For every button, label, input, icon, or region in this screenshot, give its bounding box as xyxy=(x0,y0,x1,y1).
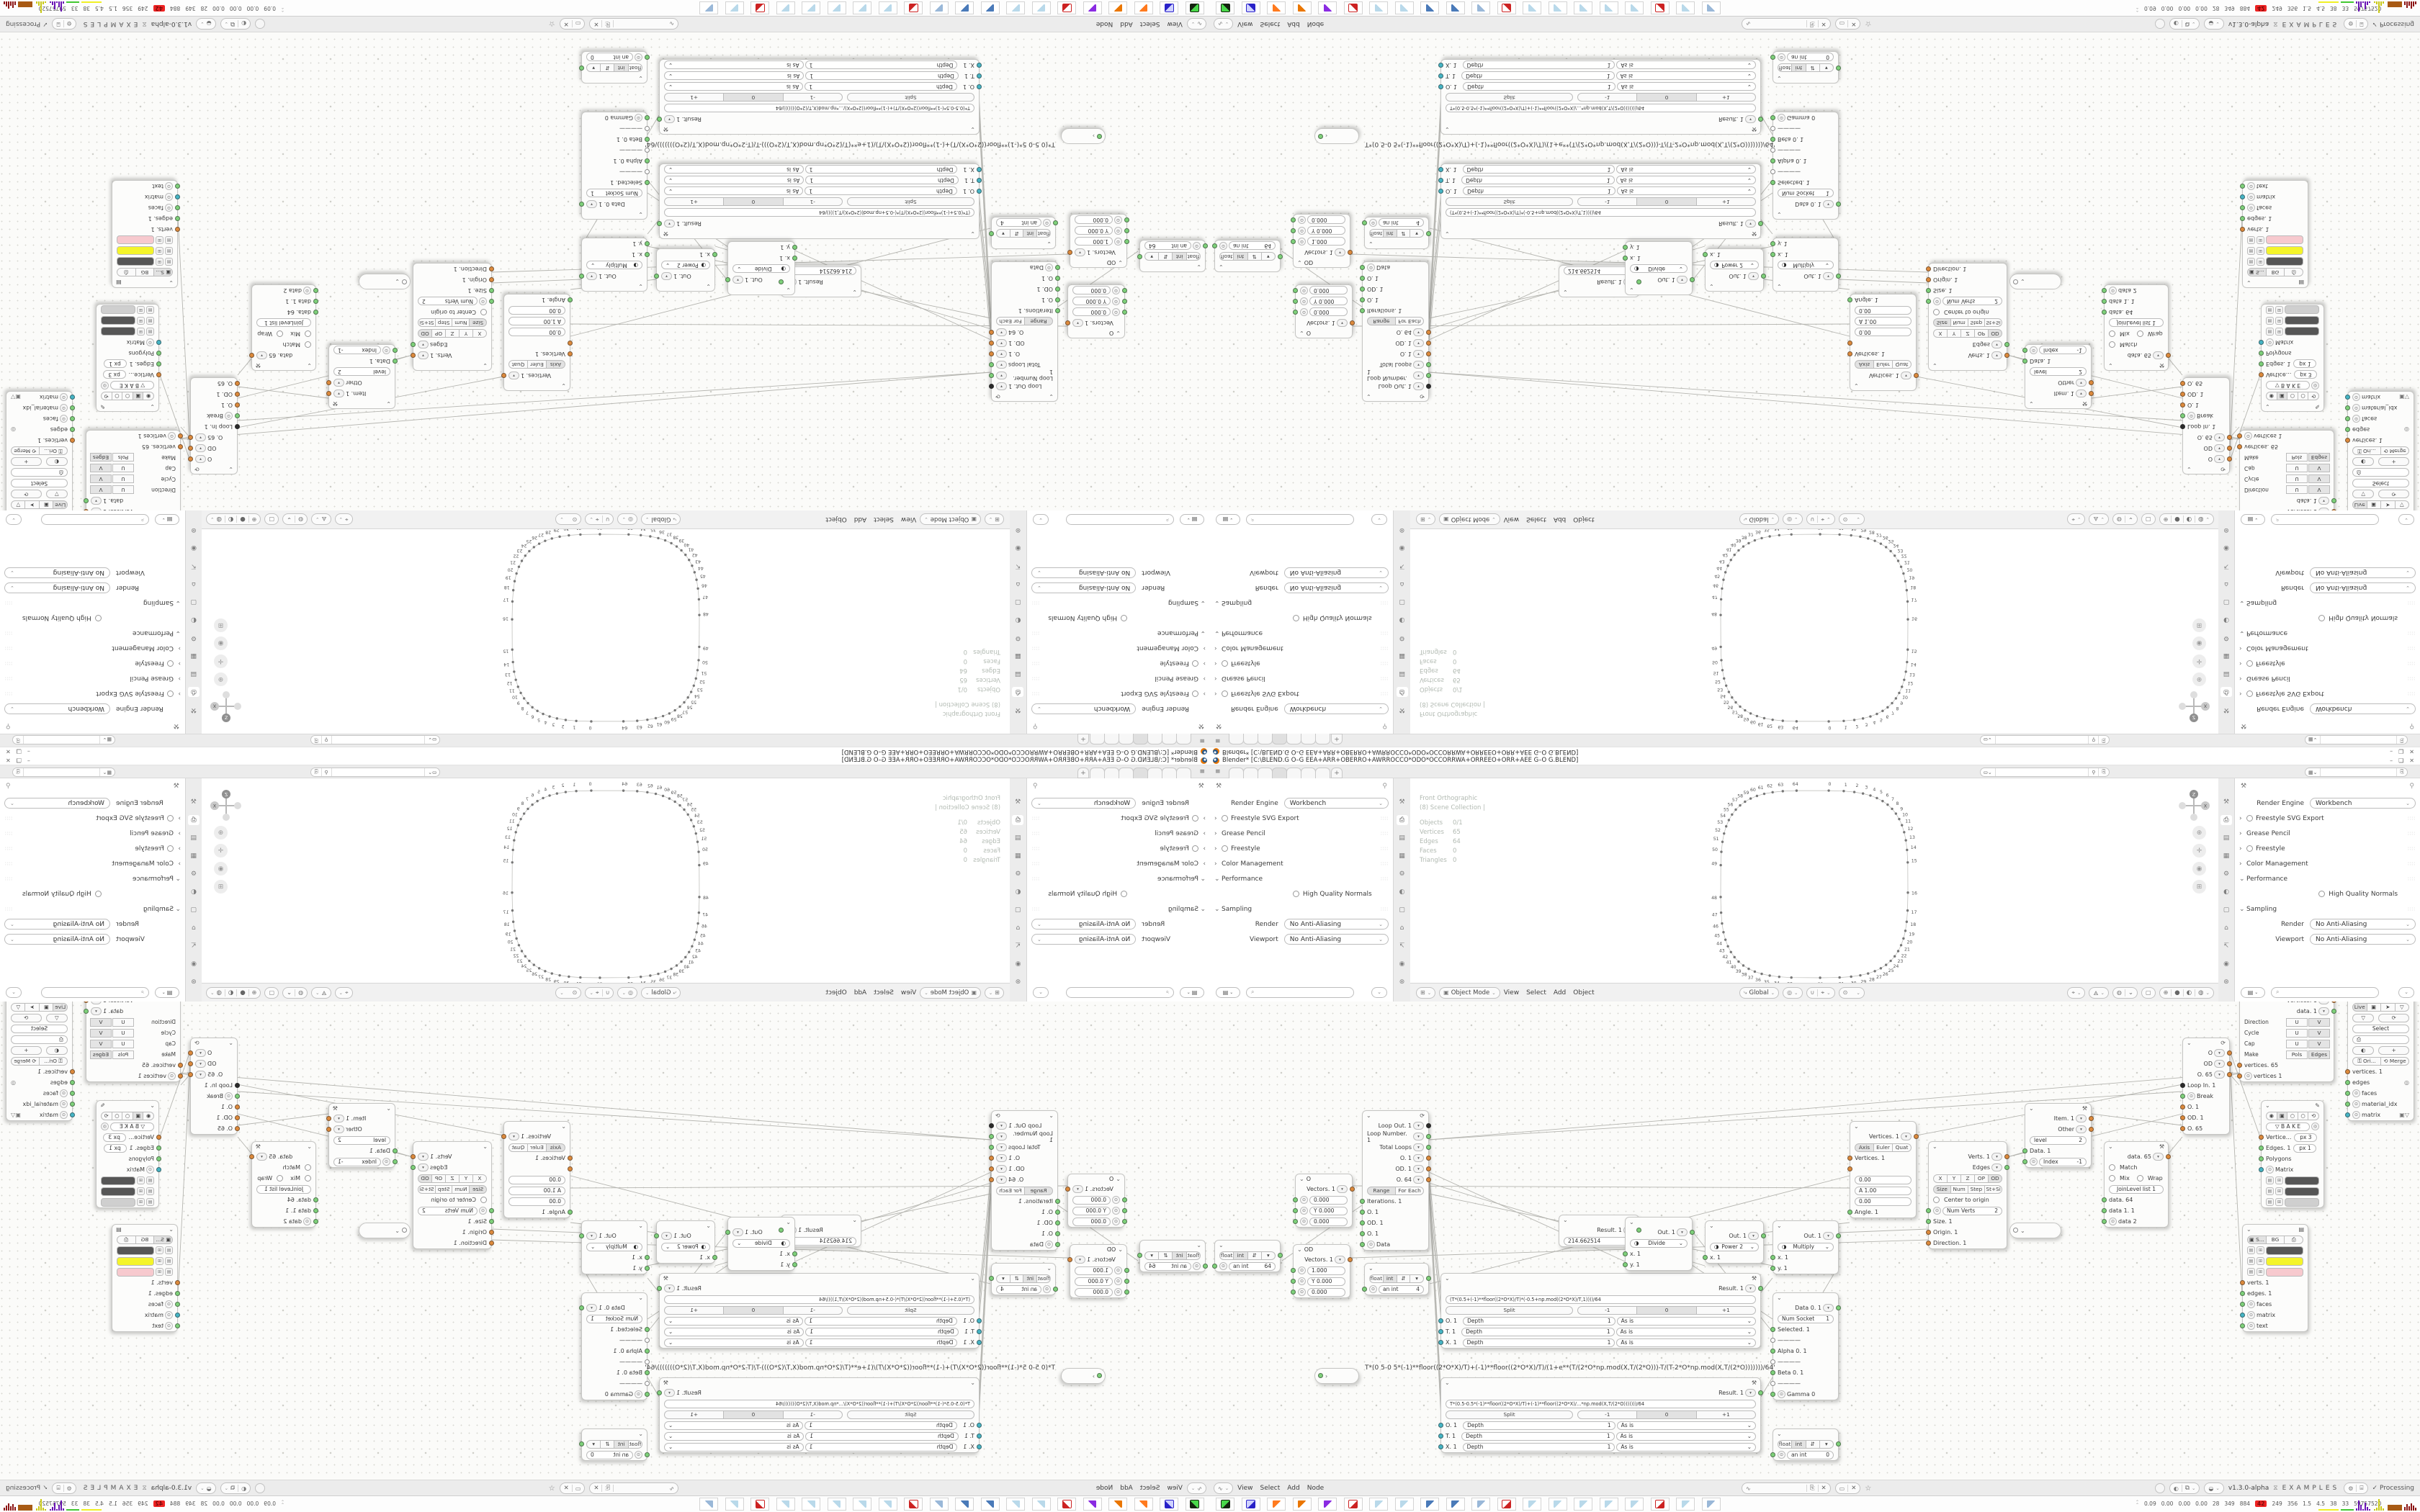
color-swatch[interactable] xyxy=(101,306,135,315)
node-header-icon[interactable]: ▤ xyxy=(2298,1226,2304,1233)
editor-type-dropdown[interactable]: ⊞⌄ xyxy=(985,987,1004,999)
swatch-option-icon[interactable]: ⊞ xyxy=(2257,236,2264,244)
node-header-icon[interactable]: ✎ xyxy=(100,403,105,410)
socket-green[interactable] xyxy=(2004,1165,2009,1170)
segment-option[interactable]: Euler xyxy=(1873,361,1893,369)
socket-menu-icon[interactable]: ▾ xyxy=(2214,433,2225,441)
node-header[interactable]: ⌄ xyxy=(582,282,647,291)
panel-toggle-checkbox[interactable] xyxy=(167,815,174,822)
property-dropdown[interactable]: No Anti-Aliasing⌄ xyxy=(4,567,110,578)
as-is-dropdown[interactable]: As is⌄ xyxy=(1617,1421,1756,1430)
socket-green[interactable] xyxy=(1055,1231,1060,1236)
segment-option[interactable]: ○ xyxy=(2298,392,2309,401)
socket-menu-icon[interactable]: ▾ xyxy=(996,1154,1007,1162)
workspace-tab[interactable] xyxy=(1162,768,1177,778)
property-dropdown[interactable]: No Anti-Aliasing⌄ xyxy=(1031,919,1136,930)
segment-option[interactable]: Step xyxy=(435,319,453,328)
value-field[interactable]: ⎙ xyxy=(2352,469,2409,477)
node-multiply[interactable]: ⌄Out. 1▾◑Multiply⌄x. 1y. 1 xyxy=(581,1220,647,1274)
node-header-icon[interactable]: ⚒ xyxy=(1752,1275,1757,1282)
segment-option[interactable]: ⟲ Merge xyxy=(11,1057,40,1066)
node-collapsed-pill[interactable]: › xyxy=(1061,128,1106,144)
segment-option[interactable]: int xyxy=(1173,1251,1187,1260)
socket-menu-icon[interactable]: ▾ xyxy=(1745,1284,1756,1292)
collapse-icon[interactable]: ⌄ xyxy=(2187,1040,2192,1046)
segmented-control[interactable]: Split xyxy=(847,94,974,102)
examples-menu[interactable]: EXAMPLES xyxy=(2282,20,2340,27)
properties-tab-icon[interactable]: ↸ xyxy=(188,941,200,951)
socket-green[interactable] xyxy=(579,1305,584,1310)
swatch-option-icon[interactable]: ⊞ xyxy=(156,236,163,244)
properties-tab-icon[interactable]: ⊛ xyxy=(2220,977,2232,987)
socket-menu-icon[interactable]: ▾ xyxy=(2076,379,2087,387)
stepper-icon[interactable]: ⊙ xyxy=(146,1166,154,1174)
value-field[interactable]: Num Socket1 xyxy=(1778,189,1834,198)
value-field[interactable]: 0.000 xyxy=(1072,287,1111,295)
view-layer-selector[interactable]: ▦⌄⎘ xyxy=(12,768,115,777)
panel-title[interactable]: Freestyle xyxy=(135,660,164,667)
row-extra-icon[interactable]: ▣▽ xyxy=(11,394,21,400)
value-field[interactable]: 0.000 xyxy=(1072,1196,1111,1205)
taskbar-icon-gear-red[interactable] xyxy=(1058,1,1077,14)
socket-green[interactable] xyxy=(2102,1219,2107,1224)
node-header[interactable]: ⌄OD xyxy=(1294,1245,1350,1254)
collapse-icon[interactable]: ⌄ xyxy=(1777,211,1782,217)
segment-option[interactable]: ▾ xyxy=(1410,230,1424,238)
property-dropdown[interactable]: No Anti-Aliasing⌄ xyxy=(1284,582,1389,593)
socket-cyan[interactable] xyxy=(156,1167,161,1172)
stepper-icon[interactable]: ⊙ xyxy=(1114,1288,1122,1296)
panel-title[interactable]: Performance xyxy=(2246,630,2287,637)
node-header[interactable]: ⌄⚒ xyxy=(2025,399,2091,408)
panel-title[interactable]: Color Management xyxy=(2246,645,2308,652)
socket-green[interactable] xyxy=(725,278,730,283)
socket-menu-icon[interactable]: ▾ xyxy=(1991,351,2002,359)
socket-orange[interactable] xyxy=(568,1156,573,1161)
segment-option[interactable]: OD xyxy=(1988,330,2002,338)
socket-green[interactable] xyxy=(579,1233,584,1238)
segment-option[interactable]: Axis xyxy=(1855,1143,1874,1152)
stepper-icon[interactable]: ⊙ xyxy=(225,1092,233,1100)
depth-field[interactable]: Depth1 xyxy=(805,1432,959,1441)
taskbar-icon-gear-red[interactable] xyxy=(1497,1,1516,14)
socket-green[interactable] xyxy=(1097,1373,1102,1378)
segment-option[interactable]: int xyxy=(1023,1274,1038,1283)
segment-option[interactable]: float xyxy=(1186,1251,1201,1260)
stepper-icon[interactable]: ⊙ xyxy=(2352,404,2360,412)
radio-button[interactable] xyxy=(2109,1175,2115,1182)
node-header-icon[interactable]: ⚒ xyxy=(1752,126,1757,132)
segment-option[interactable]: Euler xyxy=(527,1143,547,1152)
node-list-item[interactable]: ⌄⚒Item. 1▾Other▾level2Data. 1⊙Index-1 xyxy=(2025,1103,2092,1168)
segmented-control[interactable]: Split xyxy=(1446,198,1573,207)
socket-orange[interactable] xyxy=(1847,352,1852,357)
collapse-icon[interactable]: ⌄ xyxy=(169,279,174,286)
segment-option[interactable]: Z xyxy=(1960,330,1975,338)
panel-title[interactable]: Sampling xyxy=(2246,906,2277,913)
node-menu-add[interactable]: Add xyxy=(1120,20,1132,27)
segment-option[interactable]: -1 xyxy=(783,94,843,102)
segment-option[interactable]: ○ xyxy=(2298,1112,2309,1120)
segment-option[interactable]: Y xyxy=(459,330,473,338)
value-field[interactable]: an int64 xyxy=(1144,1262,1191,1271)
properties-tab-icon[interactable]: ⚙ xyxy=(1397,633,1408,643)
segment-option[interactable]: ◐ xyxy=(46,1046,68,1055)
orientation-dropdown[interactable]: ⤷Global⌄ xyxy=(1739,987,1779,999)
viewport-nav-button[interactable]: ◉ xyxy=(2192,862,2206,876)
socket-green[interactable] xyxy=(1203,1264,1208,1269)
segment-option[interactable]: Size xyxy=(1933,1185,1951,1194)
node-header[interactable]: ⌄ xyxy=(1773,1429,1838,1439)
taskbar-icon-gear-red[interactable] xyxy=(1344,1,1363,14)
socket-menu-icon[interactable]: ▾ xyxy=(996,339,1007,347)
stepper-icon[interactable]: ⊙ xyxy=(1114,1277,1122,1285)
segment-option[interactable]: ▽ xyxy=(46,1014,68,1022)
panel-toggle-checkbox[interactable] xyxy=(2246,845,2253,852)
table-option[interactable]: U xyxy=(2286,486,2308,495)
panel-title[interactable]: Sampling xyxy=(1168,600,1198,607)
stepper-icon[interactable]: ⊙ xyxy=(2352,1100,2360,1108)
socket-green[interactable] xyxy=(2345,406,2350,411)
segment-option[interactable]: ▣ S... xyxy=(2247,1236,2267,1244)
properties-tab-icon[interactable]: ◉ xyxy=(1397,543,1408,553)
color-swatch[interactable] xyxy=(2266,1246,2303,1255)
node-get-objects[interactable]: ⌄Objects▾Live▣➤▽▽⟳Select⎙◐+⚿ Ori...⟲ Mer… xyxy=(6,1002,73,1121)
value-field[interactable]: 1.000 xyxy=(1307,238,1345,246)
socket-orange[interactable] xyxy=(70,1069,75,1074)
options-dropdown[interactable]: ⌄ xyxy=(6,515,22,526)
snap-dropdown[interactable]: ∪⌖⌄ xyxy=(1806,514,1835,526)
socket-white[interactable] xyxy=(1770,1338,1775,1343)
socket-green[interactable] xyxy=(1360,309,1365,314)
viewport-nav-button[interactable]: ⊞ xyxy=(2192,618,2206,632)
collapse-icon[interactable]: ⌄ xyxy=(228,466,233,472)
segment-option[interactable]: ⇵ xyxy=(600,64,614,73)
socket-green[interactable] xyxy=(1770,1452,1775,1457)
swatch-option-icon[interactable]: ▤ xyxy=(2266,306,2274,314)
socket-menu-icon[interactable]: ▾ xyxy=(195,433,206,441)
taskbar-icon-console[interactable] xyxy=(1186,1498,1204,1511)
node-header[interactable]: ⌄⚒ xyxy=(2105,1142,2168,1151)
segment-option[interactable]: Axis xyxy=(546,361,565,369)
socket-green[interactable] xyxy=(2102,289,2107,294)
collapse-icon[interactable]: ⌄ xyxy=(1047,240,1052,247)
taskbar-icon-notepad[interactable] xyxy=(1395,1498,1414,1511)
stepper-icon[interactable]: ⊙ xyxy=(303,287,311,294)
pixel-size-field[interactable]: px 3 xyxy=(103,1133,126,1142)
pixel-size-field[interactable]: px 1 xyxy=(104,1144,127,1153)
stepper-icon[interactable]: ⊙ xyxy=(1778,114,1785,122)
as-is-dropdown[interactable]: As is⌄ xyxy=(664,1421,803,1430)
minimize-button[interactable]: – xyxy=(2390,757,2393,764)
color-swatch[interactable] xyxy=(117,1246,154,1255)
socket-menu-icon[interactable]: ▾ xyxy=(996,328,1007,336)
radio-button[interactable] xyxy=(2137,1175,2143,1182)
stepper-icon[interactable]: ⊙ xyxy=(60,404,68,412)
viewport-menu-add[interactable]: Add xyxy=(1554,989,1566,996)
socket-green[interactable] xyxy=(70,1080,75,1085)
socket-menu-icon[interactable]: ▾ xyxy=(1823,200,1834,208)
segment-option[interactable]: + xyxy=(2378,458,2409,467)
socket-orange[interactable] xyxy=(1914,1134,1919,1139)
taskbar-icon-notepad[interactable] xyxy=(1625,1,1644,14)
pivot-dropdown[interactable]: ◎⌄ xyxy=(1783,987,1802,999)
node-header[interactable]: ⌄⚒ xyxy=(660,229,979,238)
node-viewer-draw[interactable]: ⌄✎◉▣○○⟲▽ B A K E◎Vertice... px 3Edges. 1… xyxy=(96,304,159,412)
segment-option[interactable]: + xyxy=(11,458,42,467)
taskbar-icon-notepad[interactable] xyxy=(1369,1498,1388,1511)
node-vector-od[interactable]: ⌄ODVectors. 1▾⊙1.000⊙Y 0.000⊙0.000 xyxy=(1293,1244,1350,1298)
stepper-icon[interactable]: ⊙ xyxy=(146,338,154,346)
node-loop-in[interactable]: ⌄⟳Loop Out. 1▾Loop Number. 1▾Total Loops… xyxy=(1362,261,1429,402)
panel-collapse-icon[interactable]: › xyxy=(174,675,181,683)
collapse-icon[interactable]: ⌄ xyxy=(1219,264,1224,270)
stepper-icon[interactable]: ⊙ xyxy=(2266,338,2274,346)
taskbar-icon-notepad[interactable] xyxy=(802,1,821,14)
segment-option[interactable]: Axis xyxy=(546,1143,565,1152)
value-field[interactable]: 0.000 xyxy=(1072,1218,1111,1226)
collapse-icon[interactable]: ⌄ xyxy=(1777,283,1782,289)
collapse-icon[interactable]: ⌄ xyxy=(786,287,791,293)
processing-checkbox[interactable]: ✓ Processing xyxy=(6,1485,48,1492)
taskbar-icon-notepad[interactable] xyxy=(725,1,744,14)
node-header-icon[interactable]: ▤ xyxy=(2298,279,2304,286)
taskbar-icon-calculator[interactable] xyxy=(1702,1,1721,14)
color-swatch[interactable] xyxy=(117,1268,154,1277)
stepper-icon[interactable]: ⊙ xyxy=(1298,1288,1306,1296)
options-dropdown[interactable]: ⌄ xyxy=(1033,515,1049,526)
stepper-icon[interactable]: ⊙ xyxy=(479,1207,487,1215)
operation-dropdown[interactable]: ◑Multiply⌄ xyxy=(586,261,642,270)
segmented-control[interactable]: AxisEulerQuat xyxy=(1855,1143,1912,1152)
panel-expand-icon[interactable]: ⌄ xyxy=(1198,600,1206,607)
segment-option[interactable]: OP xyxy=(1974,330,1989,338)
pin-icon[interactable]: ⚲ xyxy=(1382,722,1387,729)
panel-expand-icon[interactable]: ⌄ xyxy=(174,906,181,913)
collapse-icon[interactable]: ⌄ xyxy=(706,283,711,289)
shading-mode-toggle[interactable]: ⊕●◐◍⌄ xyxy=(206,514,261,526)
value-field[interactable]: 0.000 xyxy=(1075,1288,1113,1297)
socket-green[interactable] xyxy=(2240,1291,2245,1296)
socket-menu-icon[interactable]: ▾ xyxy=(1748,1232,1759,1240)
stepper-icon[interactable]: ⊙ xyxy=(2187,1092,2195,1100)
segment-option[interactable]: int xyxy=(1173,253,1187,261)
socket-green[interactable] xyxy=(1122,1197,1127,1202)
property-dropdown[interactable]: No Anti-Aliasing⌄ xyxy=(2310,934,2416,945)
table-option[interactable]: Pols xyxy=(112,454,134,462)
socket-menu-icon[interactable]: ▾ xyxy=(1413,1165,1424,1173)
taskbar-icon-notepad[interactable] xyxy=(1523,1,1541,14)
value-field[interactable]: 214.662514 xyxy=(1564,1237,1634,1246)
collapse-icon[interactable]: ⌄ xyxy=(786,1219,791,1225)
socket-orange[interactable] xyxy=(1067,1257,1072,1262)
node-uv-connect[interactable]: ⌄vertices. 1▾data. 1▾DirectionUVCycleUVC… xyxy=(86,430,181,510)
node-list-join[interactable]: ⌄⚒data. 65▾MatchMixWrapJoinLevel list 1d… xyxy=(251,1141,316,1228)
socket-white[interactable] xyxy=(2013,279,2018,284)
segment-option[interactable]: int xyxy=(614,64,629,73)
segmented-control[interactable]: XYZOPOD xyxy=(1933,1174,2002,1183)
node-num-4[interactable]: ⌄floatint⇵▾⊙an int4 xyxy=(1364,217,1429,249)
collapse-icon[interactable]: ⌄ xyxy=(150,1102,155,1109)
swatch-option-icon[interactable]: ⊞ xyxy=(156,1257,163,1265)
segment-option[interactable]: -1 xyxy=(783,1306,843,1315)
value-field[interactable]: Num Verts2 xyxy=(418,297,478,306)
swatch-option-icon[interactable]: ▤ xyxy=(2247,236,2255,244)
node-loop-out[interactable]: ⌄⟳O▾OD▾O. 65▾Loop In. 1⊙BreakO. 1OD. 1O.… xyxy=(190,377,238,474)
properties-tab-strip-right[interactable]: ⚒⎙▤▦⚙◐▢⌂↸◉⊛ xyxy=(186,510,202,734)
panel-collapse-icon[interactable]: › xyxy=(1214,690,1222,698)
radio-button[interactable] xyxy=(277,1175,283,1182)
panel-collapse-icon[interactable]: › xyxy=(1214,860,1222,868)
taskbar-icon-notepad[interactable] xyxy=(1600,1498,1618,1511)
socket-menu-icon[interactable]: ▾ xyxy=(996,1143,1007,1151)
segment-option[interactable]: ▾ xyxy=(1261,1251,1276,1260)
depth-field[interactable]: Depth1 xyxy=(1463,1421,1615,1430)
socket-menu-icon[interactable]: ▾ xyxy=(1413,1122,1424,1130)
value-field[interactable]: Index-1 xyxy=(333,1158,381,1166)
segment-option[interactable]: int xyxy=(614,1440,629,1449)
segmented-control[interactable]: floatint⇵▾ xyxy=(1369,230,1424,238)
collapse-icon[interactable]: ⌄ xyxy=(638,1431,643,1437)
stepper-icon[interactable]: ⊙ xyxy=(1112,297,1120,305)
node-header[interactable]: ⌄⟳ xyxy=(191,464,237,474)
socket-cyan[interactable] xyxy=(1438,1329,1443,1334)
socket-orange[interactable] xyxy=(326,1127,331,1132)
node-list-item[interactable]: ⌄⚒Item. 1▾Other▾level2Data. 1⊙Index-1 xyxy=(328,1103,395,1168)
node-line[interactable]: ⌄Verts. 1▾Edges▾XYZOPODSizeNumStepSt+SiC… xyxy=(1928,1141,2007,1249)
color-swatch[interactable] xyxy=(117,247,154,256)
socket-cyan[interactable] xyxy=(1438,1423,1443,1428)
search-input[interactable]: ⌕ xyxy=(2271,515,2379,526)
mode-dropdown[interactable]: ▣Object Mode⌄ xyxy=(920,987,981,999)
segmented-control[interactable]: Live▣➤▽ xyxy=(11,501,68,510)
viewport-nav-button[interactable]: ✛ xyxy=(214,844,228,858)
depth-field[interactable]: Depth1 xyxy=(1461,1432,1615,1441)
properties-tab-icon[interactable]: ↸ xyxy=(1013,561,1024,571)
checkbox[interactable] xyxy=(1933,309,1940,315)
radio-button[interactable] xyxy=(2109,341,2115,348)
segment-option[interactable]: Z xyxy=(445,330,460,338)
property-dropdown[interactable]: No Anti-Aliasing⌄ xyxy=(4,919,110,930)
depth-field[interactable]: Depth1 xyxy=(805,1338,958,1347)
panel-title[interactable]: Freestyle SVG Export xyxy=(2256,690,2324,698)
node-num-64[interactable]: ⌄floatint⇵▾⊙an int64 xyxy=(1139,1240,1206,1272)
segmented-control[interactable]: Split xyxy=(1446,94,1573,102)
stepper-icon[interactable]: ⊙ xyxy=(60,1089,68,1097)
collapse-icon[interactable]: ⌄ xyxy=(386,400,391,407)
segment-option[interactable]: Quat xyxy=(508,1143,528,1152)
panel-title[interactable]: Color Management xyxy=(1222,645,1283,652)
workspace-tab[interactable] xyxy=(1243,734,1258,744)
socket-orange[interactable] xyxy=(2180,1104,2185,1110)
navigation-gizmo-icon[interactable]: Z X xyxy=(2177,788,2211,823)
panel-toggle-checkbox[interactable] xyxy=(1192,690,1198,697)
window-titlebar[interactable]: Blender* [C:\BLEND.G O–G EEA+ARR+OBERRO+… xyxy=(1210,747,2420,756)
taskbar-icon-notepad[interactable] xyxy=(1032,1,1051,14)
socket-menu-icon[interactable]: ▾ xyxy=(195,455,206,463)
segment-option[interactable]: ○ xyxy=(122,392,133,401)
stepper-icon[interactable]: ⊙ xyxy=(635,114,642,122)
panel-title[interactable]: Color Management xyxy=(1222,860,1283,868)
properties-tab-icon[interactable]: ⊛ xyxy=(188,977,200,987)
node-editor-menus[interactable]: ViewSelectAddNode xyxy=(1237,20,1331,27)
taskbar-icon-calculator[interactable] xyxy=(1702,1498,1721,1511)
segment-option[interactable]: Live xyxy=(53,1003,68,1012)
node-header[interactable]: ⌄⚒ xyxy=(660,1274,979,1283)
node-header[interactable]: ⌄ xyxy=(1626,285,1692,294)
settings-pill[interactable]: ⚙⌸ xyxy=(2344,1482,2367,1494)
panel-title[interactable]: Sampling xyxy=(143,906,174,913)
node-menu-view[interactable]: View xyxy=(1237,20,1252,27)
depth-field[interactable]: Depth1 xyxy=(1461,72,1615,81)
socket-green[interactable] xyxy=(579,202,584,207)
value-field[interactable]: Num Socket1 xyxy=(586,1315,642,1323)
minimize-button[interactable]: – xyxy=(27,749,30,755)
socket-green[interactable] xyxy=(156,1156,161,1161)
segment-option[interactable]: BG xyxy=(135,1236,155,1244)
properties-tab-icon[interactable]: ▤ xyxy=(188,669,200,679)
properties-tab-icon[interactable]: ↸ xyxy=(1013,941,1024,951)
viewport-nav-button[interactable]: ⊞ xyxy=(214,880,228,894)
panel-expand-icon[interactable]: ⌄ xyxy=(1214,906,1222,913)
socket-green[interactable] xyxy=(1623,256,1628,261)
editor-type-dropdown[interactable]: ⊞⌄ xyxy=(1416,514,1435,526)
segment-option[interactable]: -1 xyxy=(1577,94,1637,102)
segment-option[interactable]: float xyxy=(1036,1274,1051,1283)
segment-option[interactable]: -1 xyxy=(783,1410,843,1419)
collapse-icon[interactable]: ⌄ xyxy=(638,283,643,289)
operation-dropdown[interactable]: ◑Power 2⌄ xyxy=(661,261,710,270)
collapse-icon[interactable]: ⌄ xyxy=(2108,1143,2113,1150)
node-button[interactable]: JoinLevel list 1 xyxy=(2109,1185,2164,1194)
stepper-icon[interactable]: ⊙ xyxy=(165,1311,173,1319)
socket-orange[interactable] xyxy=(1426,1166,1431,1171)
socket-menu-icon[interactable]: ▾ xyxy=(732,276,743,284)
collapse-icon[interactable]: ⌄ xyxy=(386,1105,391,1112)
panel-title[interactable]: Freestyle SVG Export xyxy=(1231,690,1299,698)
properties-tab-icon[interactable]: ⎙ xyxy=(188,815,200,825)
segment-option[interactable]: ⟲ xyxy=(101,1112,112,1120)
socket-menu-icon[interactable]: ▾ xyxy=(1901,1133,1912,1140)
segment-option[interactable]: ○ xyxy=(112,392,123,401)
viewport-3d[interactable]: 0123456789101112131415161718192021222324… xyxy=(1410,778,2218,1002)
socket-menu-icon[interactable]: ▾ xyxy=(333,390,344,397)
taskbar-icon-gear-red[interactable] xyxy=(1651,1498,1670,1511)
formula-field[interactable]: (T*(0.5+(-1)**floor((2*O*X)/T)*(-0.5+np.… xyxy=(1446,209,1756,217)
socket-green[interactable] xyxy=(1291,240,1296,245)
stepper-icon[interactable]: ⊙ xyxy=(1300,297,1308,305)
collapse-icon[interactable]: ⌄ xyxy=(1777,1223,1782,1229)
socket-green[interactable] xyxy=(2022,1148,2027,1153)
stepper-icon[interactable]: ⊙ xyxy=(1114,1266,1122,1274)
segment-option[interactable]: ▣ xyxy=(39,1003,54,1012)
segment-option[interactable]: float xyxy=(628,1440,642,1449)
as-is-dropdown[interactable]: As is⌄ xyxy=(664,166,804,174)
properties-tab-icon[interactable]: ▢ xyxy=(1397,905,1408,915)
properties-tab-icon[interactable]: ▢ xyxy=(188,905,200,915)
value-field[interactable]: 0.00 xyxy=(1855,307,1912,315)
panel-title[interactable]: Sampling xyxy=(1222,906,1252,913)
socket-menu-icon[interactable]: ▾ xyxy=(91,508,102,510)
socket-orange[interactable] xyxy=(84,510,89,511)
orientation-dropdown[interactable]: ⤷Global⌄ xyxy=(641,987,681,999)
node-button[interactable]: Select xyxy=(11,1025,68,1033)
node-uv-connect[interactable]: ⌄vertices. 1▾data. 1▾DirectionUVCycleUVC… xyxy=(2239,1002,2334,1082)
taskbar-icon-notepad[interactable] xyxy=(1523,1498,1541,1511)
panel-collapse-icon[interactable]: › xyxy=(2239,830,2246,837)
checkbox[interactable] xyxy=(480,1197,487,1203)
panel-expand-icon[interactable]: ⌄ xyxy=(1198,876,1206,883)
